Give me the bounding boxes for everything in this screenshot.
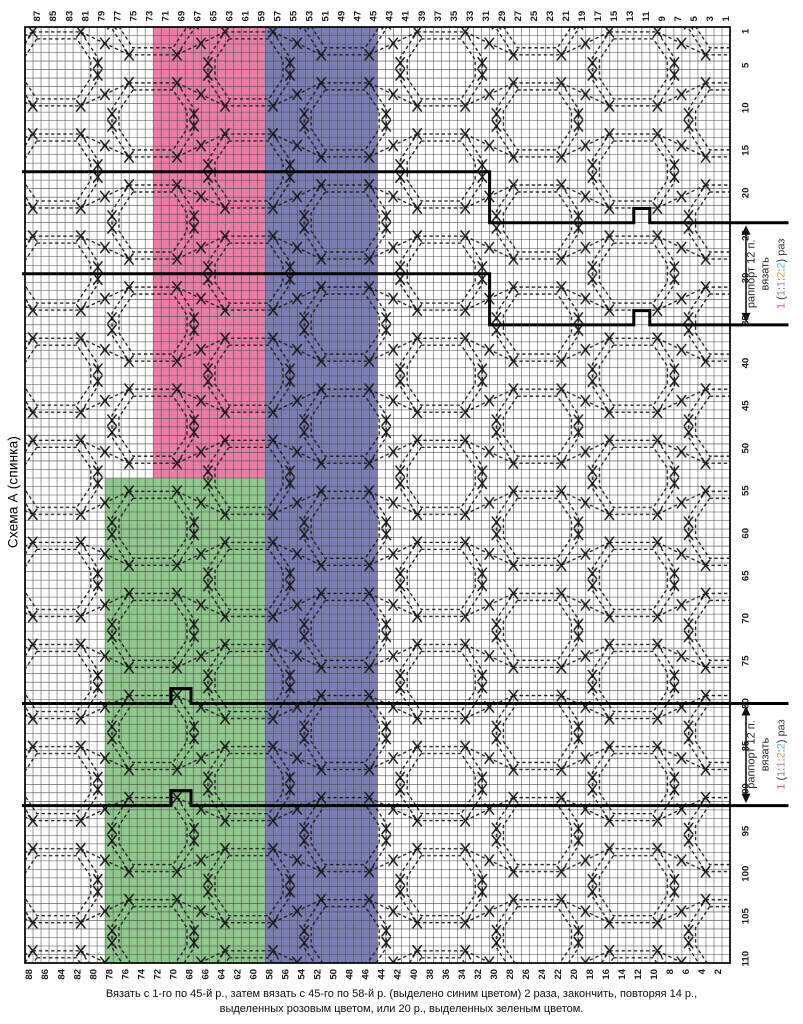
stitch-label-bottom: 64 [217,968,228,979]
row-label: 90 [741,783,752,794]
row-label: 20 [741,188,752,199]
row-label: 45 [741,400,752,411]
stitch-label-top: 5 [689,16,700,22]
stitch-label-top: 21 [561,10,572,21]
row-label: 60 [741,528,752,539]
repeat-label-line2: вязать [760,257,772,291]
stitch-label-top: 43 [385,11,396,22]
stitch-label-bottom: 18 [585,968,596,979]
stitch-label-top: 15 [609,10,620,21]
chart-title: Схема А (спинка) [6,436,21,548]
row-label: 5 [741,62,752,68]
stitch-label-top: 3 [705,16,716,21]
stitch-label-top: 57 [273,11,284,22]
stitch-label-top: 1 [721,16,732,22]
stitch-label-top: 61 [241,10,252,21]
repeat-label-line1: раппорт 12 п. [746,720,758,789]
caption-line-2: выделенных розовым цветом, или 20 р., вы… [0,1002,803,1017]
stitch-label-top: 55 [289,10,300,21]
stitch-label-bottom: 70 [168,969,179,980]
right-row-labels: 1510152025303540455055606570758085909510… [741,28,752,966]
stitch-label-bottom: 84 [56,968,67,979]
stitch-label-bottom: 80 [88,969,99,980]
stitch-label-bottom: 50 [329,969,340,980]
stitch-label-top: 35 [449,10,460,21]
stitch-label-bottom: 14 [617,968,628,979]
stitch-label-top: 29 [497,11,508,22]
stitch-label-top: 81 [80,10,91,21]
stitch-label-bottom: 58 [265,968,276,979]
stitch-label-bottom: 16 [601,969,612,980]
stitch-label-bottom: 54 [297,968,308,979]
row-label: 80 [741,698,752,709]
chart-caption: Вязать с 1-го по 45-й р., затем вязать с… [0,987,803,1016]
row-label: 70 [741,613,752,624]
stitch-label-top: 77 [112,11,123,22]
stitch-label-bottom: 60 [249,969,260,980]
stitch-label-bottom: 4 [697,968,708,974]
row-label: 30 [741,273,752,284]
row-label: 75 [741,655,752,666]
stitch-label-top: 7 [673,16,684,21]
stitch-label-bottom: 22 [553,969,564,980]
stitch-label-bottom: 38 [425,968,436,979]
stitch-label-bottom: 52 [313,969,324,980]
stitch-label-bottom: 26 [521,969,532,980]
row-label: 95 [741,825,752,836]
stitch-label-bottom: 62 [233,969,244,980]
stitch-label-top: 33 [465,11,476,22]
stitch-label-bottom: 82 [72,969,83,980]
stitch-label-bottom: 56 [281,969,292,980]
stitch-label-top: 69 [176,11,187,22]
arrowhead-down-icon [742,794,751,804]
stitch-label-bottom: 44 [377,968,388,979]
stitch-label-top: 9 [657,16,668,21]
stitch-label-top: 85 [48,10,59,21]
stitch-label-bottom: 10 [649,969,660,980]
stitch-label-top: 45 [369,10,380,21]
stitch-label-bottom: 2 [713,969,724,974]
row-label: 15 [741,144,752,155]
row-label: 25 [741,230,752,241]
row-label: 105 [741,908,752,925]
row-label: 50 [741,443,752,454]
stitch-label-top: 65 [209,10,220,21]
stitch-label-top: 83 [64,11,75,22]
stitch-label-top: 49 [337,11,348,22]
caption-line-1: Вязать с 1-го по 45-й р., затем вязать с… [0,987,803,1002]
bottom-stitch-labels: 8886848280787674727068666462605856545250… [24,968,724,979]
stitch-label-top: 47 [353,11,364,22]
stitch-label-bottom: 36 [441,969,452,980]
row-label: 10 [741,102,752,113]
stitch-label-top: 79 [96,11,107,22]
stitch-label-top: 37 [433,11,444,22]
repeat-label-line2: вязать [760,738,772,772]
top-stitch-labels: 8785838179777573716967656361595755535149… [32,10,732,21]
stitch-label-bottom: 34 [457,968,468,979]
row-label: 100 [741,866,752,882]
row-label: 40 [741,358,752,369]
stitch-label-bottom: 32 [473,969,484,980]
stitch-label-bottom: 28 [505,968,516,979]
stitch-label-bottom: 20 [569,969,580,980]
repeat-size-counts: 1 (1:1:2:2) раз [776,239,788,309]
stitch-label-top: 11 [641,11,652,22]
stitch-label-top: 13 [625,11,636,22]
cable-pattern-overlay [25,27,730,963]
stitch-label-bottom: 12 [633,969,644,980]
stitch-label-bottom: 72 [152,969,163,980]
stitch-label-bottom: 48 [345,968,356,979]
stitch-label-top: 17 [593,11,604,22]
stitch-label-top: 25 [529,10,540,21]
row-label: 85 [741,740,752,751]
stitch-label-bottom: 86 [40,969,51,980]
stitch-label-top: 71 [160,10,171,21]
knitting-chart: раппорт 12 п.вязать1 (1:1:2:2) разраппор… [0,0,803,1024]
stitch-label-top: 27 [513,11,524,22]
stitch-label-top: 51 [321,10,332,21]
row-label: 65 [741,570,752,581]
stitch-label-bottom: 66 [201,969,212,980]
stitch-label-bottom: 24 [537,968,548,979]
stitch-label-top: 87 [32,11,43,22]
repeat-size-counts: 1 (1:1:2:2) раз [776,719,788,789]
row-label: 55 [741,485,752,496]
stitch-label-bottom: 30 [489,969,500,980]
stitch-label-bottom: 46 [361,969,372,980]
stitch-label-top: 39 [417,11,428,22]
stitch-label-top: 23 [545,11,556,22]
stitch-label-bottom: 88 [24,968,35,979]
stitch-label-top: 59 [257,11,268,22]
stitch-label-bottom: 8 [665,968,676,974]
stitch-label-bottom: 76 [120,969,131,980]
stitch-label-top: 73 [144,11,155,22]
page: раппорт 12 п.вязать1 (1:1:2:2) разраппор… [0,0,803,1024]
stitch-label-bottom: 42 [393,969,404,980]
stitch-label-top: 41 [401,10,412,21]
stitch-label-top: 31 [481,10,492,21]
row-label: 110 [741,951,752,966]
row-label: 35 [741,315,752,326]
stitch-label-bottom: 68 [184,968,195,979]
stitch-label-top: 19 [577,11,588,22]
stitch-label-top: 75 [128,10,139,21]
stitch-label-bottom: 6 [681,969,692,974]
stitch-label-bottom: 40 [409,969,420,980]
stitch-label-bottom: 78 [104,968,115,979]
stitch-label-top: 53 [305,11,316,22]
stitch-label-top: 63 [225,11,236,22]
stitch-label-top: 67 [192,11,203,22]
row-label: 1 [741,28,752,34]
stitch-label-bottom: 74 [136,968,147,979]
